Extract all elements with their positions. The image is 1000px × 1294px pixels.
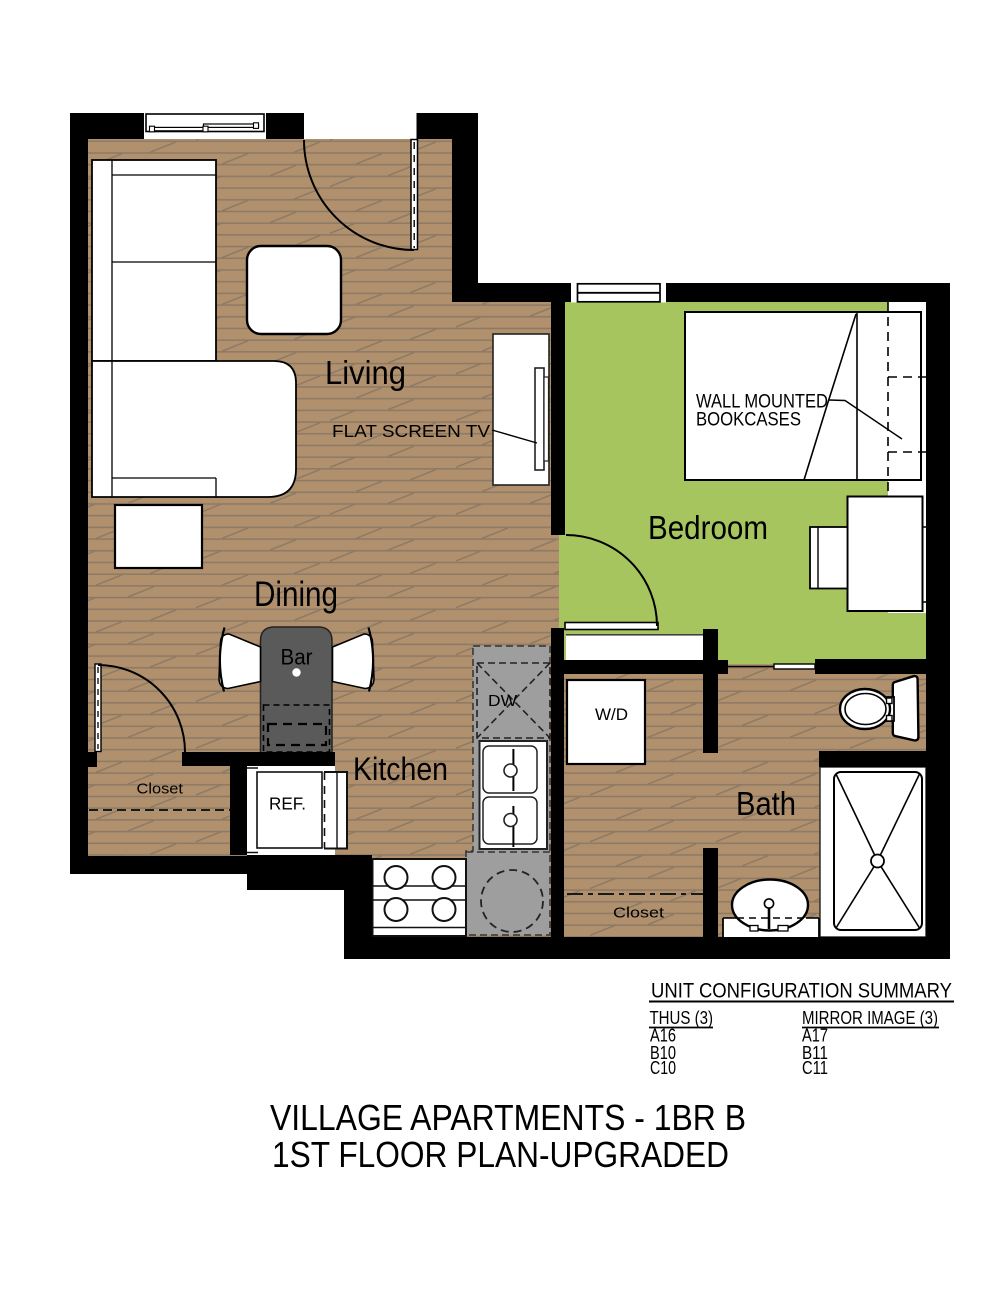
svg-text:Kitchen: Kitchen	[353, 751, 448, 787]
svg-text:BOOKCASES: BOOKCASES	[696, 410, 801, 431]
svg-text:C11: C11	[802, 1057, 828, 1078]
svg-text:Closet: Closet	[613, 905, 665, 922]
svg-text:Bar: Bar	[281, 645, 313, 670]
svg-text:FLAT SCREEN TV: FLAT SCREEN TV	[332, 421, 490, 441]
svg-text:REF.: REF.	[269, 794, 306, 814]
svg-text:Bedroom: Bedroom	[648, 510, 768, 547]
svg-text:Dining: Dining	[254, 575, 338, 614]
svg-text:C10: C10	[650, 1057, 676, 1078]
svg-text:Closet: Closet	[137, 781, 184, 798]
svg-text:DW: DW	[488, 693, 517, 710]
svg-text:Living: Living	[325, 354, 406, 391]
svg-text:Bath: Bath	[736, 785, 796, 822]
svg-text:UNIT CONFIGURATION SUMMARY: UNIT CONFIGURATION SUMMARY	[651, 980, 952, 1003]
svg-text:W/D: W/D	[595, 705, 628, 724]
svg-text:VILLAGE APARTMENTS - 1BR B: VILLAGE APARTMENTS - 1BR B	[270, 1097, 746, 1138]
svg-text:1ST FLOOR PLAN-UPGRADED: 1ST FLOOR PLAN-UPGRADED	[272, 1134, 729, 1175]
